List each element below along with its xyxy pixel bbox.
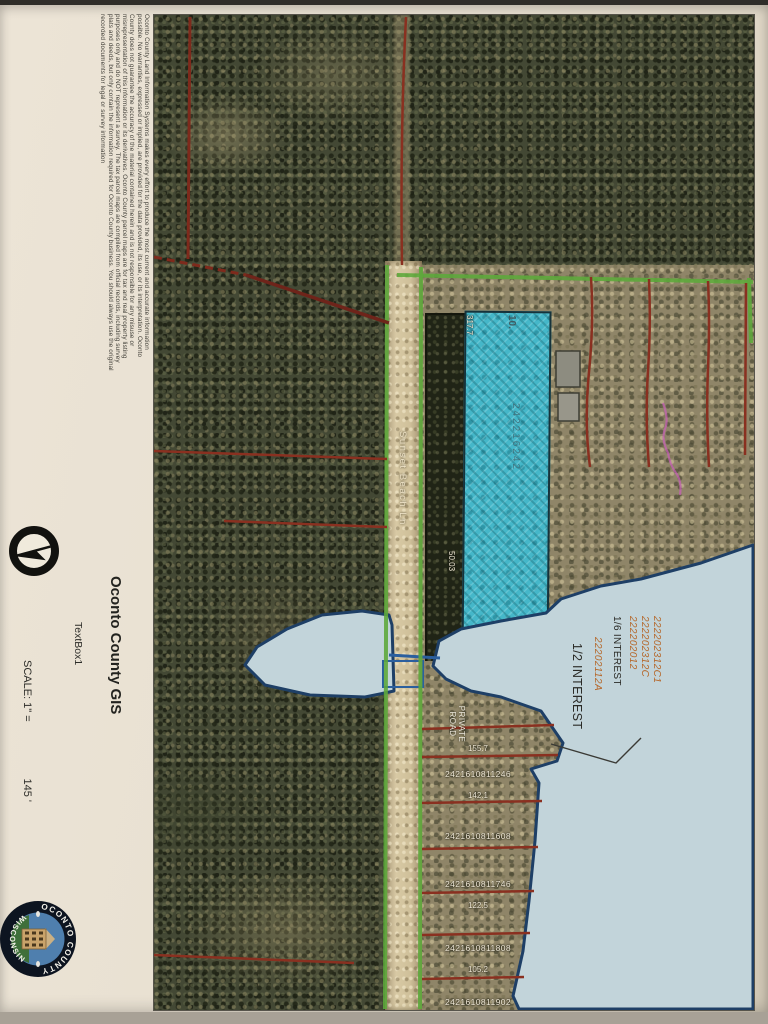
- lot-row: 155.7: [422, 744, 534, 753]
- textbox-label: TextBox1: [72, 622, 84, 688]
- page-title: Oconto County GIS: [107, 576, 124, 728]
- north-arrow-icon: [7, 524, 61, 578]
- oconto-county-seal-logo: OCONTO COUNTY WISCONSIN: [0, 898, 79, 980]
- parcel-line-red-east2: [647, 279, 650, 467]
- scale-value: 145 ': [21, 778, 33, 802]
- lake-parcel-id-3: 222202012: [627, 616, 638, 670]
- lot-row: 2421610811808: [422, 943, 534, 953]
- highlight-parcel-id-label: 242216242: [510, 403, 521, 471]
- parcel-line-red-dashed: [154, 257, 246, 275]
- lake-parcel-id-4: 22202112A: [592, 637, 603, 691]
- lot-row: 142.1: [422, 791, 534, 800]
- lot-row: 2421610811902: [422, 997, 534, 1007]
- building-1: [556, 351, 580, 387]
- lot-number-label: 10.: [506, 315, 517, 329]
- boundary-green-top: [397, 275, 753, 282]
- map-linework: [154, 15, 754, 1010]
- boundary-green-road-left: [385, 265, 387, 1009]
- photo-of-printed-map: { "sidebar": { "disclaimer": "Oconto Cou…: [0, 0, 768, 1024]
- lake-parcel-id-2: 222202312C: [639, 616, 650, 677]
- lake-parcel-id-1: 222202312C1: [651, 616, 662, 683]
- seal-right-mark: [36, 961, 40, 967]
- parcel-line-red-east3: [707, 281, 709, 467]
- parcel-line-red-west2: [224, 521, 387, 527]
- pink-annotation-line: [663, 403, 681, 495]
- scale-label: SCALE: 1" =: [21, 660, 33, 722]
- parcel-line-red-east4: [745, 283, 746, 455]
- road-name-label: Sunset Beach Ln: [397, 431, 408, 526]
- lot-row: 2421610811246: [422, 769, 534, 779]
- boundary-green-road-right: [420, 267, 421, 1009]
- pond-water: [245, 611, 394, 697]
- parcel-line-red-east1: [587, 277, 592, 467]
- parcel-line-red-trail: [402, 17, 407, 265]
- dimension-side-label: 50.03: [447, 551, 456, 571]
- interest-1-label: 1/6 INTEREST: [611, 616, 622, 686]
- culvert-line: [389, 655, 440, 658]
- lot-row: 2421610811746: [422, 879, 534, 889]
- boundary-green-right: [749, 278, 751, 343]
- dimension-top-label: 317.7: [465, 315, 474, 335]
- lot-row: 2421610811608: [422, 831, 534, 841]
- parcel-line-red-southwest: [154, 955, 354, 963]
- aerial-parcel-map: Sunset Beach Ln 10. 242216242 317.7 50.0…: [153, 14, 755, 1011]
- scale-text: SCALE: 1" = 145 ': [21, 660, 33, 802]
- lot-row: 105.2: [422, 965, 534, 974]
- lot-row: 122.5: [422, 901, 534, 910]
- seal-left-mark: [36, 911, 40, 917]
- seal-windows: [25, 932, 43, 947]
- printed-map-page: Oconto County Land Information Systems m…: [0, 5, 768, 1012]
- map-disclaimer-text: Oconto County Land Information Systems m…: [99, 14, 150, 376]
- parcel-line-red-west1: [154, 451, 387, 459]
- building-2: [558, 393, 579, 421]
- parcel-line-red-topleft: [188, 17, 190, 259]
- parcel-line-red-diagonal: [246, 275, 389, 323]
- photo-background-bottom-edge: [0, 1011, 768, 1024]
- interest-2-label: 1/2 INTEREST: [570, 643, 584, 729]
